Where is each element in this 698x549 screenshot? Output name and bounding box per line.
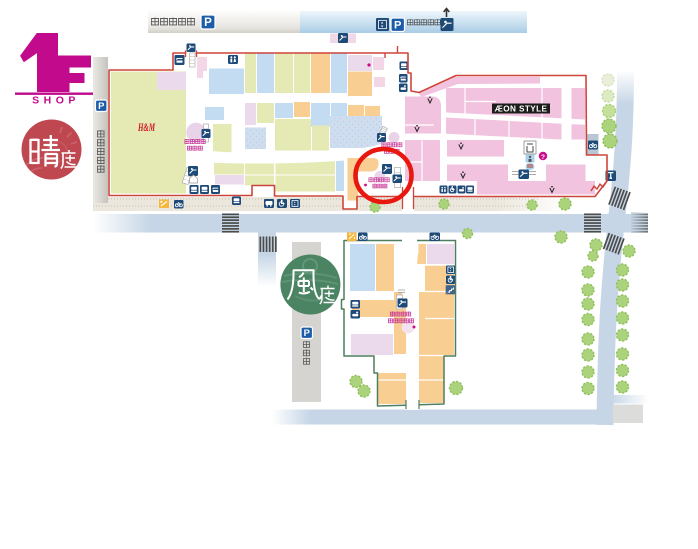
svg-text:P: P <box>394 20 402 32</box>
svg-text:P: P <box>204 17 212 29</box>
svg-text:H&M: H&M <box>137 120 155 134</box>
svg-text:SHOP: SHOP <box>32 95 80 107</box>
svg-text:P: P <box>304 327 310 338</box>
svg-text:?: ? <box>541 154 545 161</box>
svg-text:P: P <box>98 100 104 111</box>
svg-text:ÆON STYLE: ÆON STYLE <box>495 105 548 114</box>
